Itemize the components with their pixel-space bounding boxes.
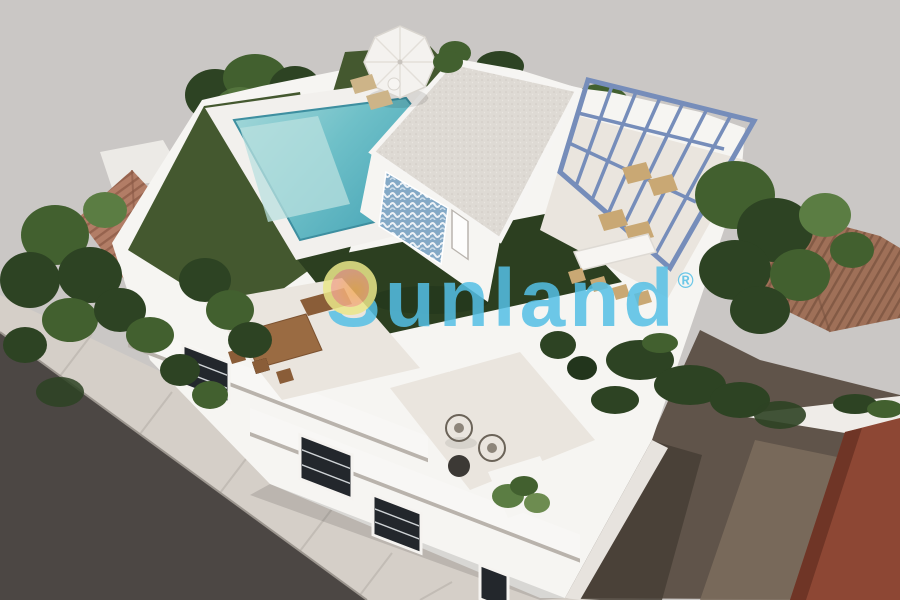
round-black-table bbox=[448, 455, 470, 477]
scene-svg bbox=[0, 0, 900, 600]
side-table bbox=[388, 78, 400, 90]
roof-bush bbox=[433, 51, 463, 73]
render-canvas: Sunland® bbox=[0, 0, 900, 600]
